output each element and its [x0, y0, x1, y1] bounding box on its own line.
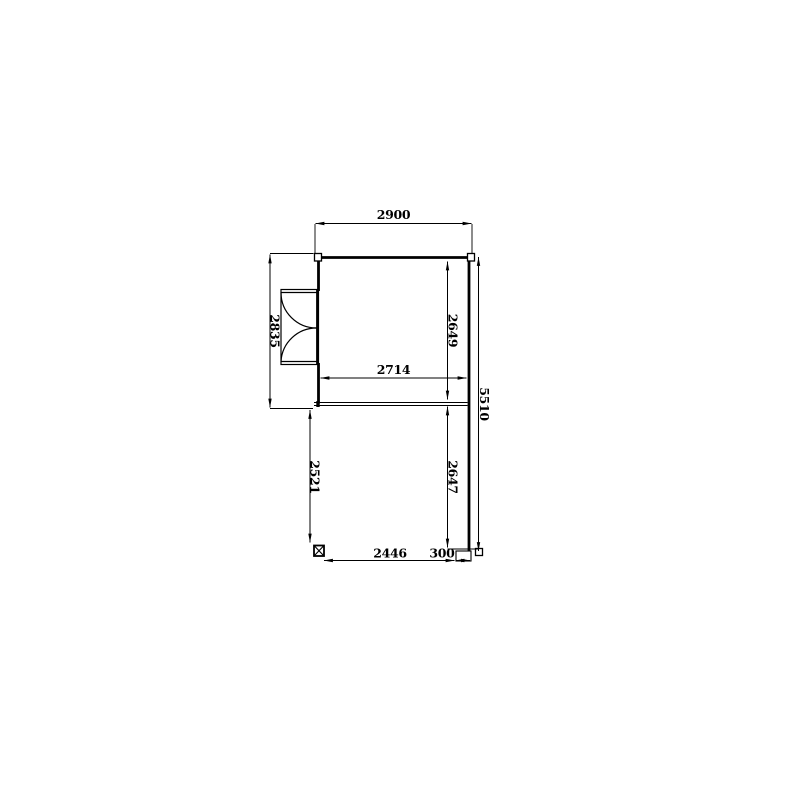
floor-plan-canvas: 2900 2835 2649 2714 5510 2521 2647 2446 …: [0, 0, 800, 800]
corner-square-top-left: [315, 254, 322, 262]
door-swing-arc-bottom: [281, 328, 317, 362]
dimension-labels: 2900 2835 2649 2714 5510 2521 2647 2446 …: [268, 207, 493, 561]
door-swing-arc-top: [281, 293, 317, 329]
dim-label-terrace-inner-height: 2647: [446, 460, 461, 494]
door-frame: [281, 290, 319, 365]
dim-label-room-inner-height: 2649: [446, 314, 461, 348]
double-door: [281, 290, 319, 365]
walls: [314, 254, 483, 556]
dim-label-left-height: 2835: [268, 314, 283, 348]
dim-label-room-inner-width: 2714: [377, 362, 411, 377]
dim-label-total-right-height: 5510: [477, 387, 492, 421]
dim-label-terrace-left-height: 2521: [308, 460, 323, 494]
dim-label-top-width: 2900: [377, 207, 411, 222]
step-box: [456, 551, 471, 561]
dim-label-bottom-step: 300: [429, 546, 455, 561]
dimension-lines: [270, 224, 479, 561]
extension-lines: [270, 224, 472, 409]
corner-square-top-right: [468, 254, 475, 262]
dim-label-bottom-width: 2446: [373, 546, 407, 561]
floor-plan-drawing: 2900 2835 2649 2714 5510 2521 2647 2446 …: [0, 0, 800, 800]
